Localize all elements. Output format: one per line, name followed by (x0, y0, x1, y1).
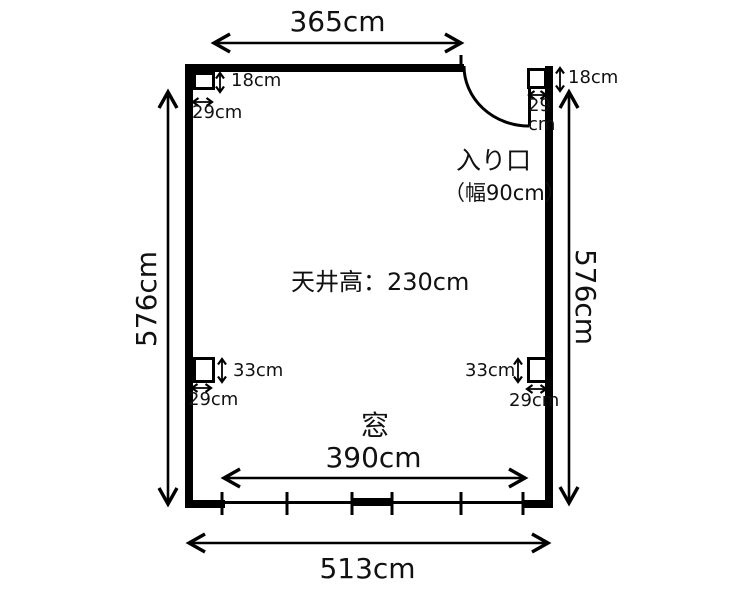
pillar-bottom-right (529, 359, 547, 382)
door-swing-arc (464, 66, 529, 126)
pillar-top-left-depth-label: 18cm (231, 71, 281, 92)
wall-bottom-right-segment (524, 500, 553, 508)
window-width-label: 390cm (306, 442, 441, 474)
entrance-width-label: （幅90cm） (444, 181, 566, 205)
dim-arrow-tl-18 (216, 73, 224, 92)
wall-end-stub (460, 55, 463, 66)
pillar-bottom-left-depth-label: 33cm (233, 361, 283, 382)
entrance-label: 入り口 (456, 147, 531, 176)
bottom-width-label: 513cm (300, 553, 435, 585)
dim-arrow-bottom-513 (189, 534, 548, 552)
window-tick (351, 492, 354, 515)
pillar-top-right-width-label: 29 cm (528, 97, 555, 135)
window-tick (286, 492, 289, 515)
pillar-top-left (195, 74, 214, 89)
window-tick (391, 492, 394, 515)
left-height-label: 576cm (131, 249, 161, 349)
dim-arrow-tr-18 (556, 68, 564, 91)
window-line (223, 501, 524, 504)
top-width-label: 365cm (270, 6, 405, 38)
pillar-top-right-depth-label: 18cm (568, 68, 618, 89)
pillar-top-right (529, 70, 546, 88)
pillar-bottom-left-width-label: 29cm (188, 390, 238, 411)
floor-plan: 365cm 513cm 576cm 576cm 天井高：230cm 入り口 （幅… (0, 0, 750, 600)
window-label: 窓 (340, 410, 410, 442)
dim-arrow-bl-33 (218, 359, 226, 382)
wall-top (185, 64, 464, 72)
ceiling-height-label: 天井高：230cm (291, 269, 469, 297)
pillar-bottom-right-width-label: 29cm (509, 391, 559, 412)
window-tick (522, 492, 525, 515)
wall-left (185, 64, 193, 508)
wall-bottom-left-segment (185, 500, 225, 508)
right-height-label: 576cm (571, 247, 601, 347)
window-tick (221, 492, 224, 515)
floor-plan-graphic (0, 0, 750, 600)
window-tick (460, 492, 463, 515)
pillar-bottom-right-depth-label: 33cm (465, 361, 515, 382)
pillar-bottom-left (195, 359, 214, 382)
pillar-top-left-width-label: 29cm (192, 103, 242, 124)
